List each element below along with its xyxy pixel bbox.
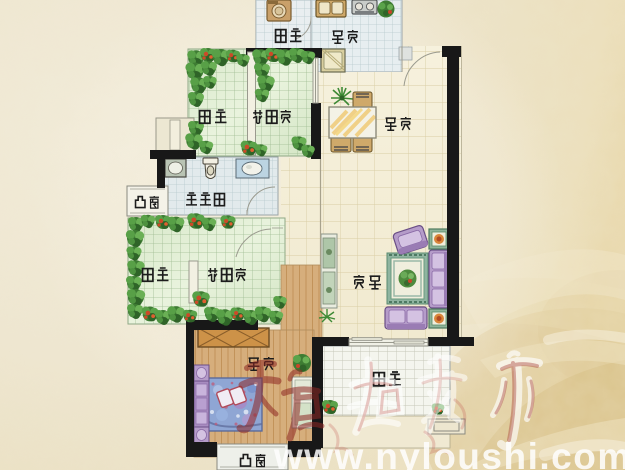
svg-text:www.nyloushi.com: www.nyloushi.com bbox=[273, 436, 625, 470]
